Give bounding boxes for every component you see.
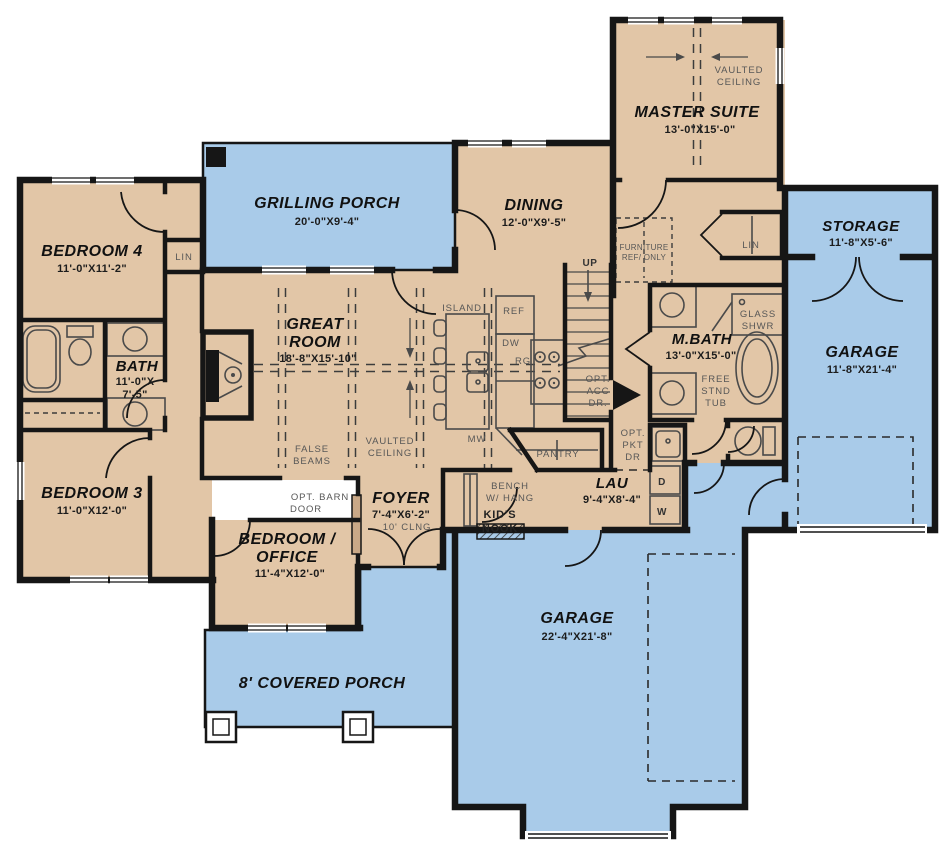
label-bench-1: BENCH bbox=[491, 481, 529, 492]
label-linen1: LIN bbox=[175, 252, 192, 263]
label-opt-pkt-3: DR bbox=[625, 452, 641, 463]
label-kids-nook-1: KID'S bbox=[484, 509, 517, 521]
label-glass-1: GLASS bbox=[740, 309, 776, 320]
floor-plan-page: MASTER SUITE 13'-0"X15'-0" VAULTED CEILI… bbox=[0, 0, 950, 860]
window bbox=[248, 624, 286, 633]
label-mw: MW bbox=[468, 434, 487, 445]
label-laundry-dims: 9'-4"X8'-4" bbox=[583, 494, 641, 506]
label-barn-2: DOOR bbox=[290, 504, 322, 515]
label-bath-dims2: 7'-5" bbox=[122, 389, 147, 401]
label-island: ISLAND bbox=[442, 303, 482, 314]
label-opt-acc-3: DR. bbox=[588, 398, 607, 409]
label-bedroom3: BEDROOM 3 bbox=[41, 485, 142, 502]
floor-plan-drawing: MASTER SUITE 13'-0"X15'-0" VAULTED CEILI… bbox=[0, 0, 950, 860]
label-grilling-porch-dims: 20'-0"X9'-4" bbox=[295, 216, 360, 228]
label-gr-vaulted-1: VAULTED bbox=[366, 436, 415, 447]
garage-door-main bbox=[525, 831, 671, 841]
label-foyer-dims: 7'-4"X6'-2" bbox=[372, 509, 430, 521]
label-opt-pkt-1: OPT. bbox=[621, 428, 646, 439]
label-foyer: FOYER bbox=[372, 490, 430, 507]
label-dining: DINING bbox=[505, 197, 564, 214]
label-great-room-dims: 18'-8"X15'-10" bbox=[279, 353, 356, 365]
label-opt-acc-2: ACC bbox=[587, 386, 610, 397]
label-rg: RG bbox=[515, 356, 531, 367]
label-false-beams-2: BEAMS bbox=[293, 456, 331, 467]
label-kids-nook-2: NOOK bbox=[482, 523, 518, 535]
label-false-beams-1: FALSE bbox=[295, 444, 329, 455]
label-ref: REF bbox=[503, 306, 525, 317]
label-dw: DW bbox=[502, 338, 520, 349]
label-furniture-1: FURNITURE bbox=[620, 243, 669, 252]
label-foyer-ceiling: 10' CLNG bbox=[383, 522, 432, 533]
label-garage-main: GARAGE bbox=[540, 610, 614, 627]
label-bedroom4: BEDROOM 4 bbox=[41, 243, 142, 260]
window bbox=[330, 266, 374, 275]
porch-column bbox=[206, 712, 236, 742]
window bbox=[664, 16, 694, 25]
label-grilling-porch: GRILLING PORCH bbox=[254, 195, 400, 212]
window bbox=[110, 576, 148, 585]
label-bedroom-office-dims: 11'-4"X12'-0" bbox=[255, 568, 325, 580]
label-storage: STORAGE bbox=[822, 218, 900, 235]
label-garage-right: GARAGE bbox=[825, 344, 899, 361]
garage-door-right bbox=[797, 524, 927, 535]
label-bedroom3-dims: 11'-0"X12'-0" bbox=[57, 505, 127, 517]
label-master-suite: MASTER SUITE bbox=[634, 104, 760, 121]
label-tub-2: STND bbox=[701, 386, 730, 397]
label-storage-dims: 11'-8"X5'-6" bbox=[829, 237, 893, 249]
fireplace bbox=[203, 332, 251, 418]
label-up: UP bbox=[583, 258, 598, 269]
label-bedroom-office-2: OFFICE bbox=[256, 549, 318, 566]
window bbox=[468, 139, 502, 148]
label-opt-acc-1: OPT. bbox=[586, 374, 611, 385]
label-linen2: LIN bbox=[742, 240, 759, 251]
label-furniture-2: REF/ ONLY bbox=[622, 253, 667, 262]
label-great-room-1: GREAT bbox=[286, 316, 344, 333]
window bbox=[628, 16, 658, 25]
label-covered-porch: 8' COVERED PORCH bbox=[239, 675, 406, 692]
label-vaulted-2: CEILING bbox=[717, 77, 761, 88]
label-dining-dims: 12'-0"X9'-5" bbox=[502, 217, 567, 229]
label-bench-2: W/ HANG bbox=[486, 493, 534, 504]
grill-icon bbox=[206, 147, 226, 167]
porch-column bbox=[343, 712, 373, 742]
fireplace-box bbox=[206, 350, 219, 402]
label-tub-3: TUB bbox=[705, 398, 727, 409]
label-glass-2: SHWR bbox=[742, 321, 775, 332]
barn-door-slab bbox=[352, 495, 361, 554]
label-laundry: LAU bbox=[596, 475, 629, 492]
label-bedroom4-dims: 11'-0"X11'-2" bbox=[57, 263, 127, 275]
label-opt-pkt-2: PKT bbox=[622, 440, 643, 451]
label-mbath: M.BATH bbox=[672, 331, 733, 348]
label-garage-main-dims: 22'-4"X21'-8" bbox=[542, 631, 613, 643]
label-barn-1: OPT. BARN bbox=[291, 492, 349, 503]
label-gr-vaulted-2: CEILING bbox=[368, 448, 412, 459]
window bbox=[776, 48, 785, 84]
label-garage-right-dims: 11'-8"X21'-4" bbox=[827, 364, 897, 376]
label-mbath-dims: 13'-0"X15'-0" bbox=[666, 350, 737, 362]
label-tub-1: FREE bbox=[702, 374, 731, 385]
area-garage-right bbox=[785, 257, 935, 530]
label-great-room-2: ROOM bbox=[289, 334, 341, 351]
label-pantry: PANTRY bbox=[536, 449, 579, 460]
window bbox=[288, 624, 326, 633]
window bbox=[52, 176, 90, 185]
window bbox=[712, 16, 742, 25]
label-dryer: D bbox=[658, 477, 666, 488]
window bbox=[96, 176, 134, 185]
window bbox=[512, 139, 546, 148]
label-washer: W bbox=[657, 507, 667, 518]
label-vaulted-1: VAULTED bbox=[715, 65, 764, 76]
window bbox=[262, 266, 306, 275]
window bbox=[16, 462, 25, 500]
label-bath: BATH bbox=[116, 358, 159, 375]
label-bath-dims1: 11'-0"X bbox=[116, 376, 155, 388]
window bbox=[70, 576, 108, 585]
label-bedroom-office-1: BEDROOM / bbox=[239, 531, 337, 548]
label-master-suite-dims: 13'-0"X15'-0" bbox=[665, 124, 736, 136]
